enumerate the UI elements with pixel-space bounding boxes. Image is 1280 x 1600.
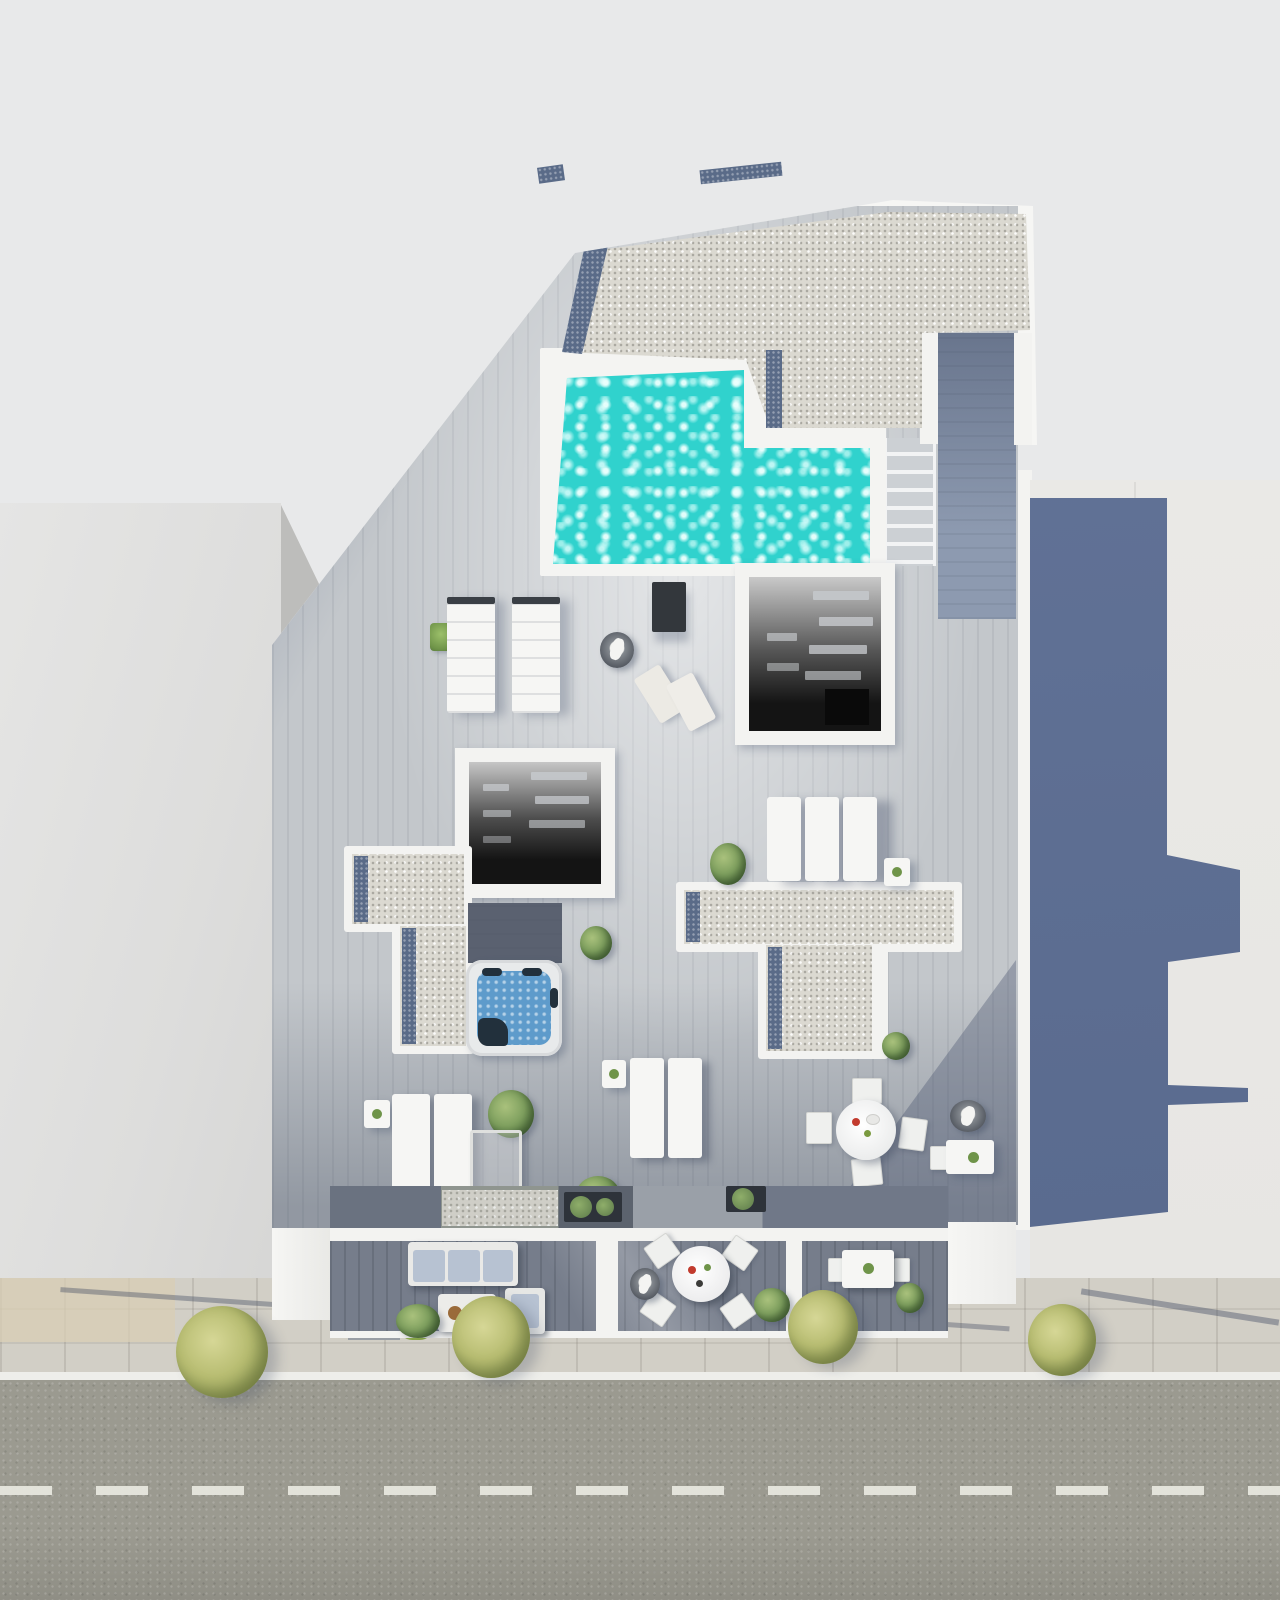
stair-walkway bbox=[938, 333, 1016, 619]
building-west-wall-face bbox=[272, 1228, 330, 1320]
terrace-chair bbox=[894, 1258, 910, 1282]
table-item-plate bbox=[866, 1114, 880, 1125]
round-dining-table bbox=[836, 1100, 896, 1160]
daybed-headboard bbox=[447, 597, 495, 604]
outdoor-shower-panel bbox=[652, 582, 686, 632]
closed-parasol-3 bbox=[630, 1268, 660, 1300]
lower-floor-strip bbox=[330, 1186, 948, 1228]
side-table-mid bbox=[884, 858, 910, 886]
planter-dark-1 bbox=[564, 1192, 622, 1222]
table-item-dark bbox=[696, 1280, 703, 1287]
parasol-canvas bbox=[608, 637, 626, 662]
side-table-bl bbox=[364, 1100, 390, 1128]
plant-on-table bbox=[372, 1109, 382, 1119]
parasol-canvas bbox=[959, 1104, 977, 1127]
upper-roof-gravel-strip-2 bbox=[699, 162, 782, 184]
neighbor-building-left bbox=[0, 503, 281, 1307]
terrace-round-table bbox=[672, 1246, 730, 1302]
stair-tread bbox=[805, 671, 861, 680]
planter-dark-2 bbox=[726, 1186, 766, 1212]
sofa-cushion bbox=[413, 1250, 445, 1282]
daybed-2 bbox=[512, 597, 560, 713]
daybed-1 bbox=[447, 597, 495, 713]
sun-lounger bbox=[843, 797, 877, 881]
terrace-plant-left bbox=[396, 1304, 440, 1338]
sun-lounger bbox=[668, 1058, 702, 1158]
sidewalk-tan-patch bbox=[0, 1278, 175, 1342]
table-item-red bbox=[688, 1266, 696, 1274]
street-tree bbox=[176, 1306, 268, 1398]
stair-atrium-right bbox=[735, 563, 895, 745]
stair-tread bbox=[483, 810, 511, 817]
stair-tread bbox=[483, 836, 511, 843]
sun-lounger bbox=[434, 1094, 472, 1196]
street-tree bbox=[452, 1296, 530, 1378]
walkway-parapet-right bbox=[1014, 333, 1032, 445]
terrace-plant-right-2 bbox=[896, 1283, 924, 1313]
jacuzzi-cover-fold bbox=[478, 1018, 508, 1046]
street-tree bbox=[1028, 1304, 1096, 1376]
jacuzzi bbox=[466, 960, 562, 1056]
terrace-rect-table bbox=[842, 1250, 894, 1288]
stair-tread bbox=[813, 591, 869, 600]
daybed-headboard bbox=[512, 597, 560, 604]
plant-on-table bbox=[863, 1263, 874, 1274]
dining-chair bbox=[806, 1112, 832, 1144]
plant-on-table bbox=[968, 1152, 979, 1163]
dining-chair bbox=[898, 1116, 928, 1151]
stair-tread bbox=[809, 645, 867, 654]
stair-tread bbox=[529, 820, 585, 828]
gravel-roof-right-bar-blue-strip bbox=[686, 892, 700, 942]
closed-parasol-1 bbox=[600, 632, 634, 668]
bush-right-roof-corner bbox=[882, 1032, 910, 1060]
walkway-parapet-left bbox=[920, 330, 938, 444]
sun-lounger bbox=[805, 797, 839, 881]
sun-lounger bbox=[630, 1058, 664, 1158]
gravel-roof-right-leg-blue-strip bbox=[768, 947, 782, 1049]
parasol-canvas bbox=[637, 1273, 653, 1295]
table-item-red bbox=[852, 1118, 860, 1126]
dining-chair bbox=[851, 1157, 884, 1188]
street-tree bbox=[788, 1290, 858, 1364]
upper-roof-gravel-strip-1 bbox=[537, 164, 565, 183]
sofa-cushion bbox=[448, 1250, 480, 1282]
side-table-c bbox=[602, 1060, 626, 1088]
planter-plant bbox=[596, 1198, 614, 1216]
sofa-cushion bbox=[483, 1250, 513, 1282]
jacuzzi-dark-deck-strip bbox=[468, 903, 562, 963]
stair-tread bbox=[531, 772, 587, 780]
side-table-right bbox=[946, 1140, 994, 1174]
stair-atrium-right-shaft bbox=[749, 577, 881, 731]
building-east-wall-face bbox=[948, 1222, 1016, 1304]
stair-tread bbox=[819, 617, 873, 626]
stair-atrium-dark-box bbox=[825, 689, 869, 725]
stair-tread bbox=[767, 633, 797, 641]
outdoor-sofa bbox=[408, 1242, 518, 1286]
table-item-green bbox=[864, 1130, 871, 1137]
lower-gravel-patch bbox=[442, 1190, 558, 1226]
gravel-roof-left-leg-blue-strip bbox=[402, 928, 416, 1044]
jacuzzi-headrest bbox=[550, 988, 558, 1008]
gravel-roof-right-bar bbox=[684, 890, 954, 944]
stair-tread bbox=[535, 796, 589, 804]
planter-plant bbox=[732, 1188, 754, 1210]
stair-tread bbox=[767, 663, 799, 671]
render-canvas bbox=[0, 0, 1280, 1600]
gravel-roof-top-blue-strip-vertical bbox=[766, 350, 782, 428]
stair-atrium-left-shaft bbox=[469, 762, 601, 884]
planter-plant bbox=[570, 1196, 592, 1218]
sun-lounger bbox=[767, 797, 801, 881]
plant-on-table bbox=[892, 867, 902, 877]
terrace-divider-1 bbox=[596, 1228, 618, 1338]
terrace-plant-center bbox=[754, 1288, 790, 1322]
jacuzzi-headrest bbox=[522, 968, 542, 976]
lane-dashed-line bbox=[0, 1486, 1280, 1495]
table-item-green bbox=[704, 1264, 711, 1271]
closed-parasol-2 bbox=[950, 1100, 986, 1132]
stair-tread bbox=[483, 784, 509, 791]
bush-near-atrium bbox=[580, 926, 612, 960]
pool-stairs bbox=[884, 438, 936, 566]
sun-lounger bbox=[392, 1094, 430, 1196]
gravel-roof-left-bar bbox=[352, 854, 464, 924]
plant-on-table bbox=[609, 1069, 619, 1079]
terrace-parapet bbox=[330, 1228, 948, 1241]
gravel-roof-left-bar-blue-strip bbox=[354, 856, 368, 922]
stair-atrium-left bbox=[455, 748, 615, 898]
jacuzzi-headrest bbox=[482, 968, 502, 976]
bush-mid-left bbox=[710, 843, 746, 885]
